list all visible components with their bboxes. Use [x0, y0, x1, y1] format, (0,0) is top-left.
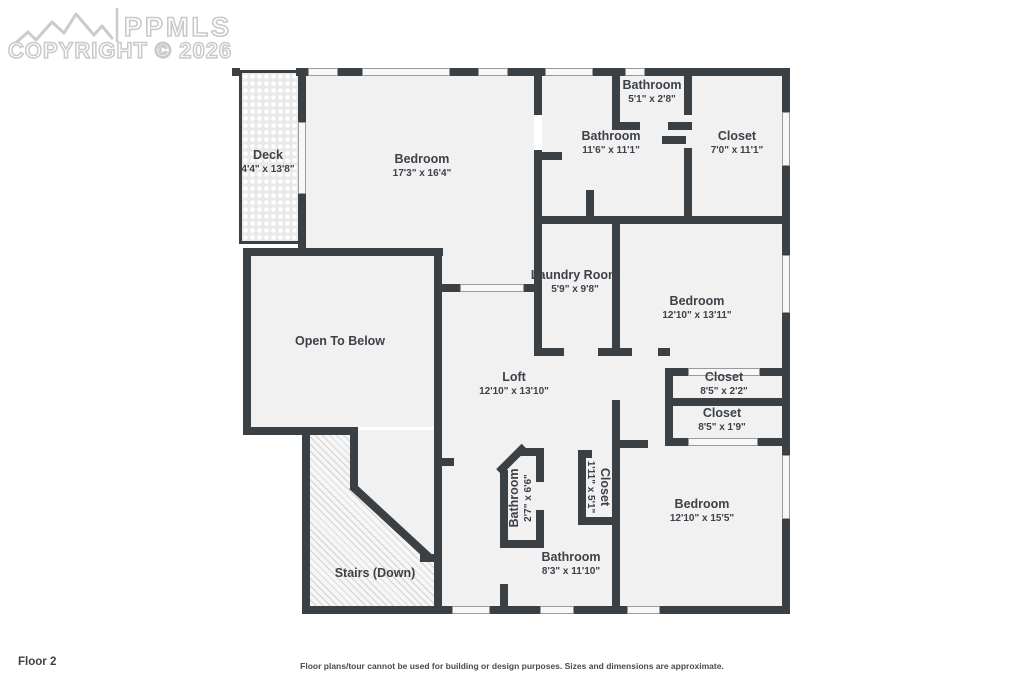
- wall: [434, 248, 442, 566]
- room-label-deck: Deck4'4" x 13'8": [241, 148, 294, 176]
- window: [627, 606, 660, 614]
- watermark-copyright: COPYRIGHT © 2026: [8, 38, 232, 62]
- window: [782, 455, 790, 519]
- disclaimer-text: Floor plans/tour cannot be used for buil…: [300, 661, 724, 671]
- wall: [534, 348, 564, 356]
- wall: [612, 448, 620, 606]
- wall: [668, 122, 692, 130]
- window: [478, 68, 508, 76]
- wall: [302, 427, 310, 614]
- wall: [542, 152, 562, 160]
- wall: [662, 136, 686, 144]
- railing-window: [460, 284, 524, 292]
- wall: [534, 216, 790, 224]
- wall: [350, 427, 358, 489]
- room-label-closet-mid-upper: Closet8'5" x 2'2": [700, 370, 748, 398]
- window: [452, 606, 490, 614]
- wall: [665, 368, 673, 446]
- watermark: PPMLS COPYRIGHT © 2026: [4, 2, 234, 62]
- wall: [243, 248, 251, 435]
- floor-plan-page: PPMLS COPYRIGHT © 2026: [0, 0, 1024, 682]
- floor-number-label: Floor 2: [18, 656, 56, 668]
- room-label-bathroom-bottom: Bathroom8'3" x 11'10": [541, 550, 600, 578]
- wall: [578, 517, 620, 525]
- room-label-loft: Loft12'10" x 13'10": [479, 370, 549, 398]
- wall: [243, 427, 305, 435]
- room-label-bathroom-small-mid: Bathroom2'7" x 6'6": [507, 468, 535, 527]
- room-label-bathroom-top: Bathroom11'6" x 11'1": [581, 129, 640, 157]
- window: [362, 68, 450, 76]
- wall: [684, 68, 692, 115]
- room-label-stairs: Stairs (Down): [335, 566, 416, 582]
- room-label-laundry: Laundry Room5'9" x 9'8": [531, 268, 619, 296]
- deck-door: [298, 122, 306, 194]
- window: [308, 68, 338, 76]
- wall: [612, 348, 632, 356]
- room-label-closet-small: Closet1'11" x 5'1": [584, 461, 612, 514]
- wall: [665, 398, 790, 406]
- room-label-closet-mid-lower: Closet8'5" x 1'9": [698, 406, 746, 434]
- window: [782, 255, 790, 313]
- wall: [442, 458, 454, 466]
- wall: [500, 540, 544, 548]
- room-label-bathroom-small-top: Bathroom5'1" x 2'8": [622, 78, 681, 106]
- wall: [298, 68, 306, 122]
- wall: [684, 148, 692, 224]
- railing-wall: [442, 284, 460, 292]
- window: [540, 606, 574, 614]
- deck-edge: [239, 70, 298, 73]
- room-label-bedroom-top: Bedroom17'3" x 16'4": [393, 152, 452, 180]
- window: [545, 68, 593, 76]
- wall: [578, 450, 592, 458]
- wall: [658, 348, 670, 356]
- floor-area: [442, 248, 534, 606]
- closet-door: [688, 438, 758, 446]
- wall: [434, 558, 442, 614]
- wall: [243, 248, 443, 256]
- wall: [500, 584, 508, 608]
- wall: [612, 440, 648, 448]
- room-label-bedroom-right: Bedroom12'10" x 13'11": [662, 294, 731, 322]
- room-label-open-to-below: Open To Below: [295, 334, 385, 350]
- wall: [612, 68, 620, 130]
- wall: [534, 68, 542, 115]
- room-label-closet-top: Closet7'0" x 11'1": [711, 129, 764, 157]
- wall: [298, 194, 306, 252]
- deck-edge: [239, 241, 299, 244]
- window: [782, 112, 790, 166]
- window: [625, 68, 645, 76]
- wall: [536, 448, 544, 482]
- room-label-bedroom-bottom: Bedroom12'10" x 15'5": [670, 497, 734, 525]
- wall: [612, 400, 620, 440]
- wall: [534, 150, 542, 356]
